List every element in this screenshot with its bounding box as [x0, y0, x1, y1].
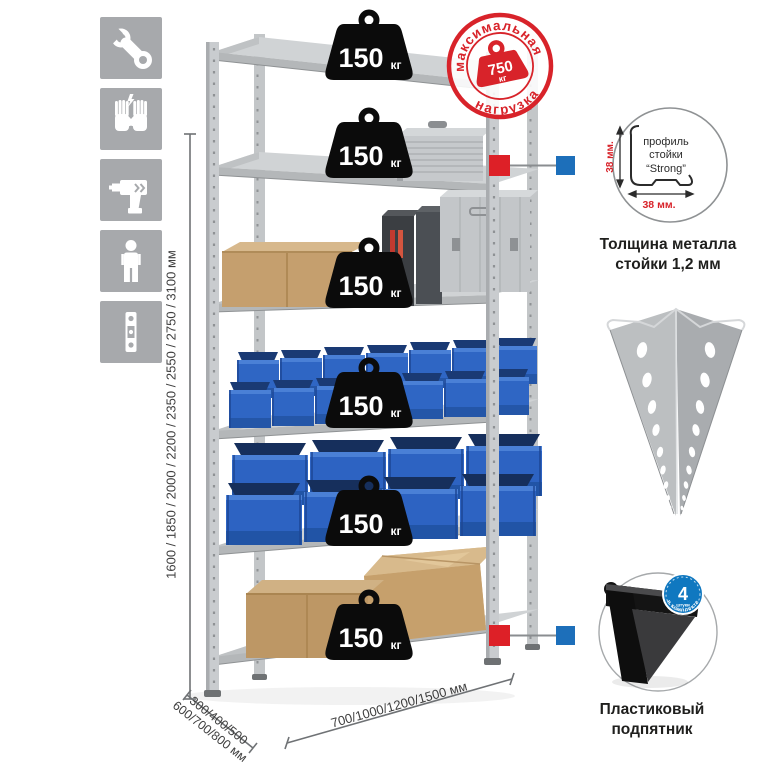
svg-text:кг: кг — [390, 406, 401, 420]
angle-post-image — [608, 309, 745, 516]
height-dimension-label: 1600 / 1850 / 2000 / 2200 / 2350 / 2550 … — [164, 133, 179, 697]
profile-dim-horizontal: 38 мм. — [642, 199, 675, 211]
svg-text:профиль: профиль — [643, 136, 689, 148]
svg-text:кг: кг — [390, 286, 401, 300]
foot-caption-line2: подпятник — [611, 721, 692, 738]
svg-text:кг: кг — [390, 156, 401, 170]
red-marker-bottom — [489, 625, 510, 646]
count-badge: 4 штуки в комплекте — [663, 574, 703, 614]
load-badge-2: 150 кг — [325, 111, 412, 179]
profile-dim-vertical: 38 мм. — [605, 141, 616, 173]
max-load-stamp: максимальная нагрузка 750 кг — [440, 6, 561, 127]
rack-scene: 150 кг 150 кг 150 кг 150 кг 150 кг — [0, 0, 765, 765]
blue-marker-bottom — [556, 626, 575, 645]
profile-detail-circle: 38 мм. 38 мм. профиль стойки “Strong” — [605, 108, 727, 222]
height-dimension-line — [184, 134, 196, 699]
svg-text:“Strong”: “Strong” — [646, 163, 686, 175]
red-marker-top — [489, 155, 510, 176]
foot-caption-line1: Пластиковый — [600, 701, 705, 718]
svg-text:кг: кг — [390, 58, 401, 72]
profile-caption: Толщина металла стойки 1,2 мм — [583, 235, 753, 275]
svg-text:150: 150 — [338, 391, 383, 421]
rack-post-front-right — [484, 52, 501, 665]
profile-caption-line1: Толщина металла — [600, 236, 737, 253]
foot-caption: Пластиковый подпятник — [567, 700, 737, 740]
foot-detail-circle: 4 штуки в комплекте — [599, 573, 717, 691]
profile-label: профиль стойки “Strong” — [643, 136, 689, 175]
load-badge-1: 150 кг — [325, 13, 412, 81]
svg-text:150: 150 — [338, 43, 383, 73]
svg-text:150: 150 — [338, 271, 383, 301]
svg-text:150: 150 — [338, 141, 383, 171]
svg-text:150: 150 — [338, 509, 383, 539]
profile-caption-line2: стойки 1,2 мм — [615, 256, 720, 273]
svg-text:кг: кг — [390, 524, 401, 538]
rack-post-front-left — [204, 42, 221, 697]
product-infographic: 150 кг 150 кг 150 кг 150 кг 150 кг — [0, 0, 765, 765]
svg-text:кг: кг — [390, 638, 401, 652]
blue-marker-top — [556, 156, 575, 175]
badge-number: 4 — [678, 584, 688, 604]
svg-text:150: 150 — [338, 623, 383, 653]
svg-text:стойки: стойки — [649, 149, 683, 161]
